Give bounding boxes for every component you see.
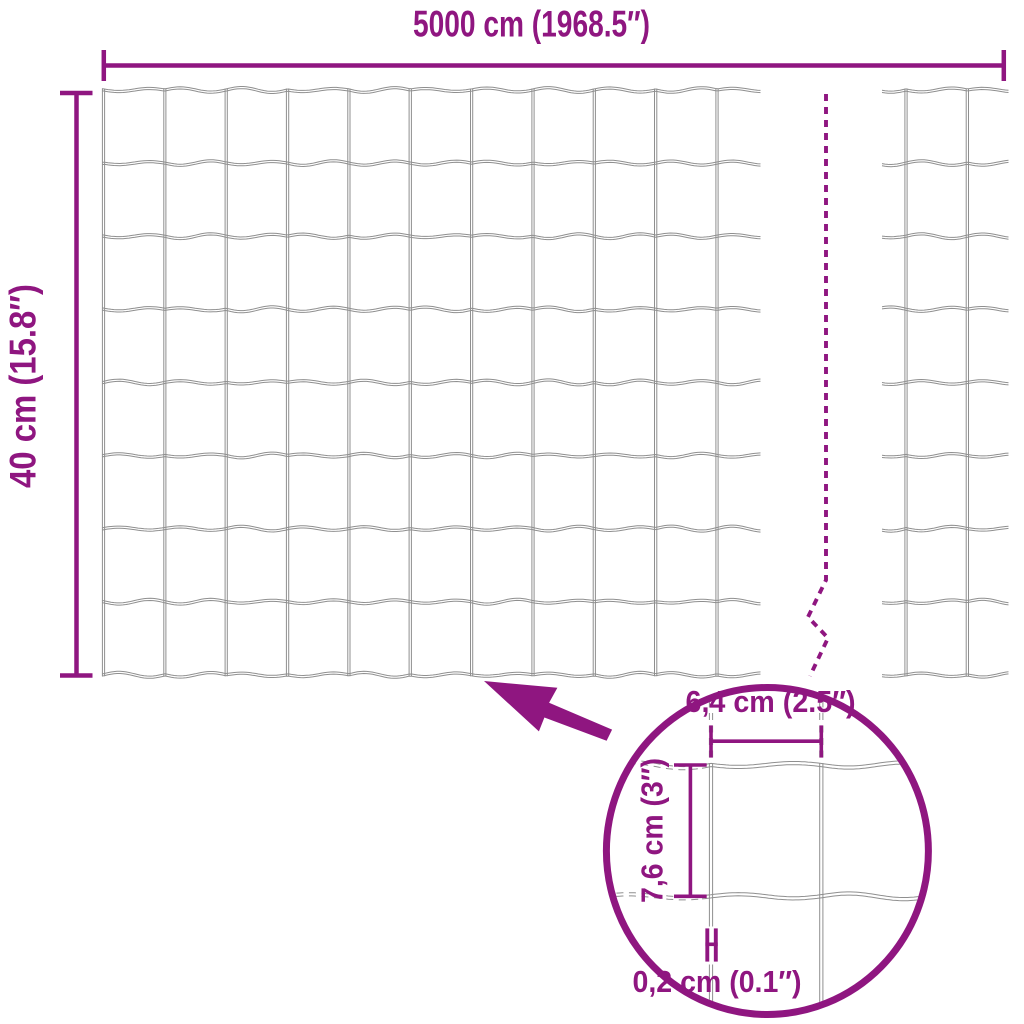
- svg-text:5000 cm (1968.5″): 5000 cm (1968.5″): [413, 4, 650, 45]
- svg-text:6,4 cm (2.5″): 6,4 cm (2.5″): [686, 684, 856, 719]
- svg-text:0,2 cm (0.1″): 0,2 cm (0.1″): [633, 964, 802, 999]
- svg-text:40 cm (15.8″): 40 cm (15.8″): [3, 284, 44, 488]
- svg-text:7,6 cm (3″): 7,6 cm (3″): [635, 758, 670, 903]
